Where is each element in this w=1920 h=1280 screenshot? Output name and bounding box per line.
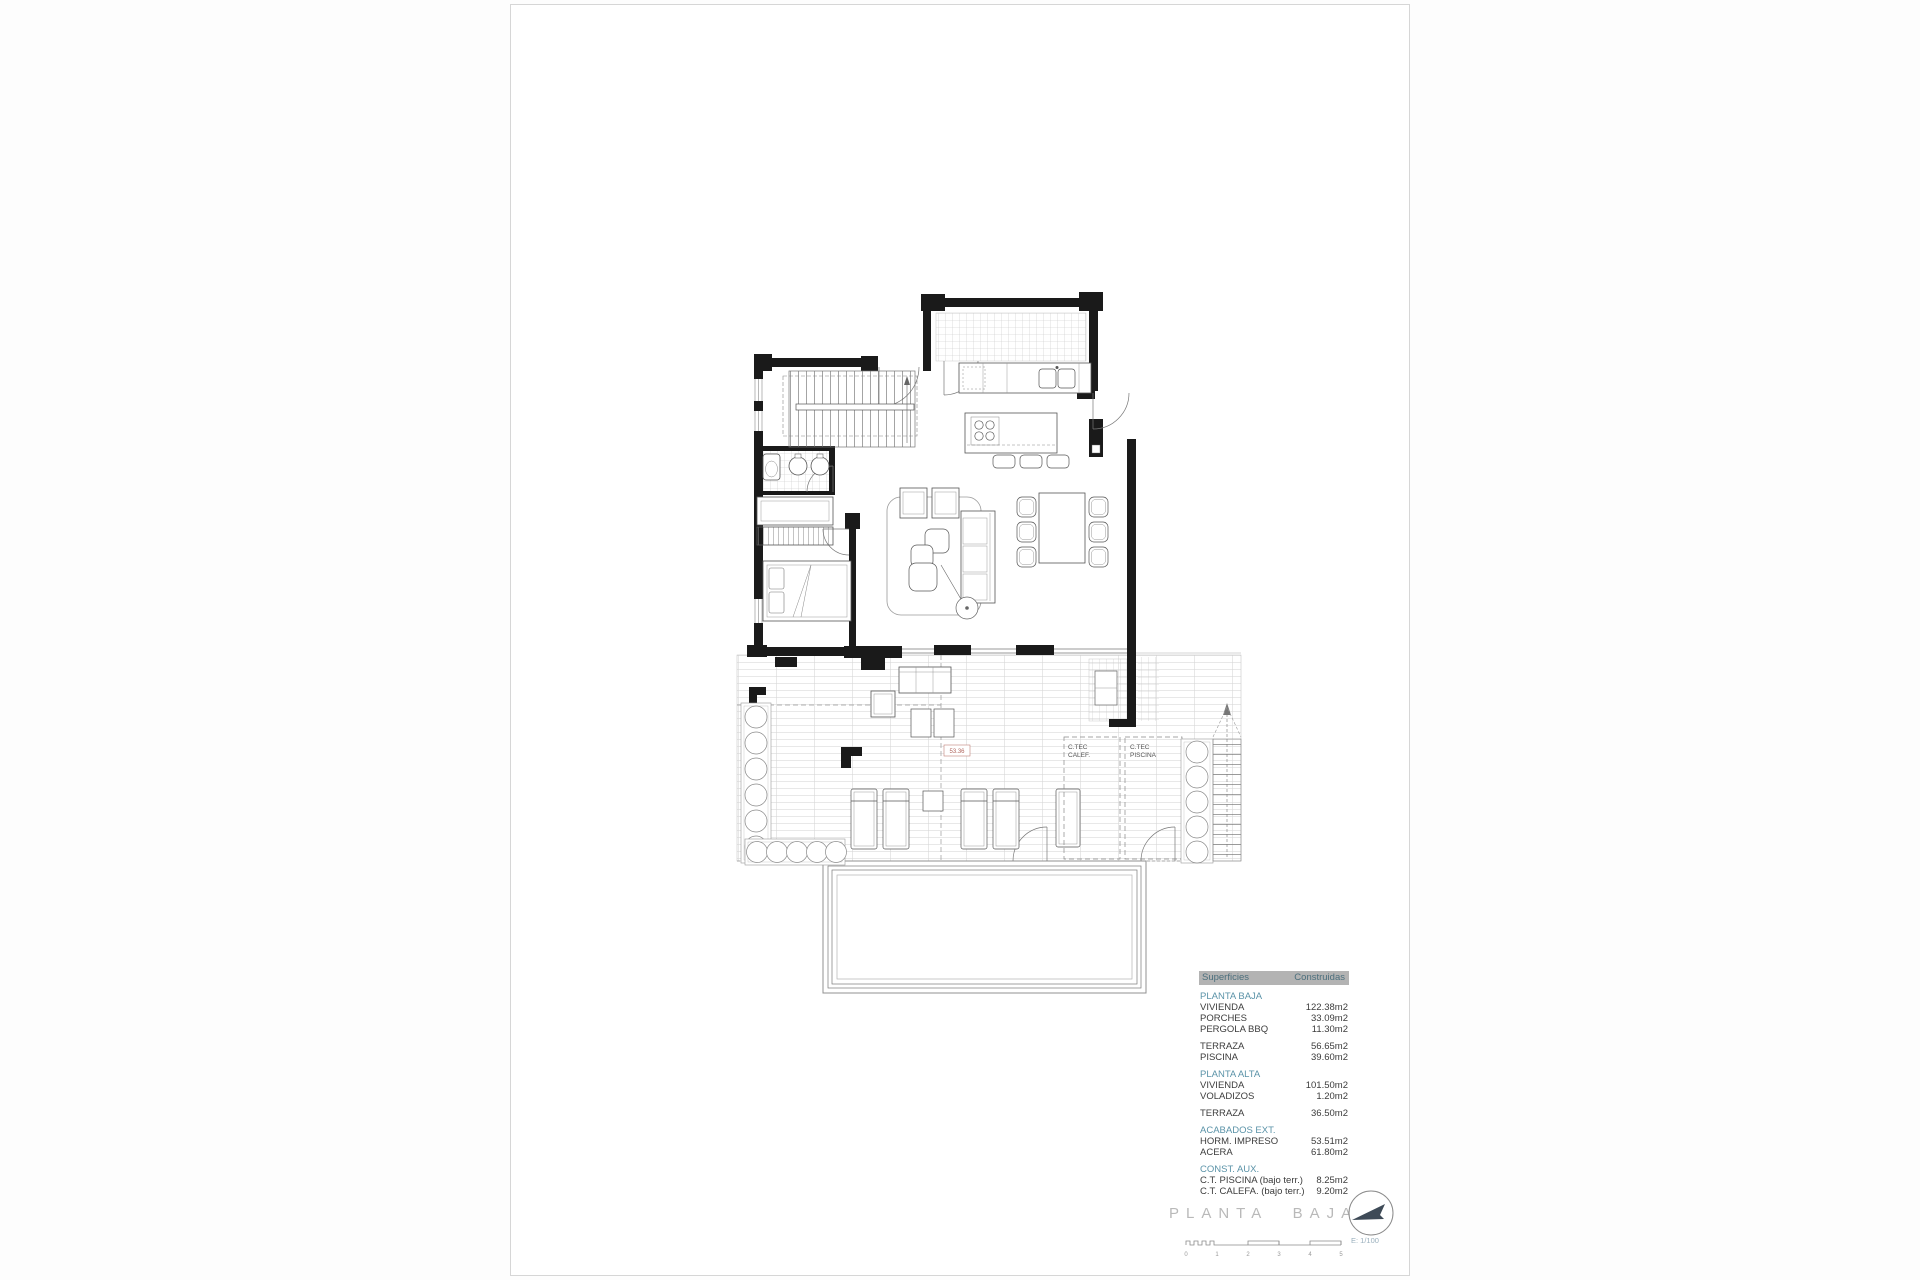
ct-piscina-label-2: PISCINA <box>1130 752 1157 759</box>
surfaces-table-header: Superficies Construidas <box>1199 971 1349 985</box>
surface-row: VIVIENDA101.50m2 <box>1199 1080 1349 1091</box>
bed <box>763 561 851 621</box>
surface-section-heading: PLANTA BAJA <box>1199 991 1349 1002</box>
surface-label: C.T. CALEFA. (bajo terr.) <box>1200 1186 1305 1197</box>
outdoor-dining-annex <box>1089 657 1159 721</box>
section-label: CONST. AUX. <box>1200 1164 1259 1175</box>
surface-row: PERGOLA BBQ11.30m2 <box>1199 1024 1349 1035</box>
level-mark: 53.36 <box>944 745 970 756</box>
surface-row: TERRAZA56.65m2 <box>1199 1041 1349 1052</box>
sheet-title: PLANTA BAJA <box>1169 1205 1358 1222</box>
wardrobe <box>757 497 833 545</box>
surface-value: 36.50m2 <box>1311 1108 1348 1119</box>
surface-value: 101.50m2 <box>1306 1080 1348 1091</box>
surface-row: HORM. IMPRESO53.51m2 <box>1199 1136 1349 1147</box>
plan-sheet-a4: C.TEC CALEF. C.TEC PISCINA 53.36 <box>510 4 1410 1276</box>
dining-set <box>1017 493 1108 567</box>
surface-value: 33.09m2 <box>1311 1013 1348 1024</box>
surface-label: VIVIENDA <box>1200 1080 1244 1091</box>
surface-value: 11.30m2 <box>1312 1024 1348 1035</box>
surface-row: C.T. PISCINA (bajo terr.)8.25m2 <box>1199 1175 1349 1186</box>
surface-label: VIVIENDA <box>1200 1002 1244 1013</box>
surface-label: TERRAZA <box>1200 1041 1244 1052</box>
section-label: PLANTA BAJA <box>1200 991 1262 1002</box>
surface-label: PISCINA <box>1200 1052 1238 1063</box>
surface-row: C.T. CALEFA. (bajo terr.)9.20m2 <box>1199 1186 1349 1197</box>
surface-label: TERRAZA <box>1200 1108 1244 1119</box>
surface-value: 56.65m2 <box>1311 1041 1348 1052</box>
column-construidas: Construidas <box>1294 973 1345 983</box>
level-mark-value: 53.36 <box>949 749 965 755</box>
staircase <box>783 371 917 447</box>
surface-value: 9.20m2 <box>1316 1186 1348 1197</box>
ct-calefa-label-1: C.TEC <box>1068 744 1088 751</box>
surface-row: PORCHES33.09m2 <box>1199 1013 1349 1024</box>
surface-section-heading: PLANTA ALTA <box>1199 1069 1349 1080</box>
surface-section-heading: ACABADOS EXT. <box>1199 1125 1349 1136</box>
surface-row: TERRAZA36.50m2 <box>1199 1108 1349 1119</box>
living-room-furniture <box>887 488 995 619</box>
surface-value: 122.38m2 <box>1306 1002 1348 1013</box>
surface-row: PISCINA39.60m2 <box>1199 1052 1349 1063</box>
surface-row: VOLADIZOS1.20m2 <box>1199 1091 1349 1102</box>
surface-value: 61.80m2 <box>1311 1147 1348 1158</box>
swimming-pool <box>823 861 1146 993</box>
surface-value: 53.51m2 <box>1311 1136 1348 1147</box>
surface-label: VOLADIZOS <box>1200 1091 1254 1102</box>
ct-piscina-label-1: C.TEC <box>1130 744 1150 751</box>
kitchen-counter <box>959 363 1091 393</box>
surface-value: 1.20m2 <box>1316 1091 1348 1102</box>
section-label: PLANTA ALTA <box>1200 1069 1260 1080</box>
section-label: ACABADOS EXT. <box>1200 1125 1276 1136</box>
surface-row: ACERA61.80m2 <box>1199 1147 1349 1158</box>
surface-label: PERGOLA BBQ <box>1200 1024 1268 1035</box>
terrace-paving <box>737 653 1241 861</box>
surface-row: VIVIENDA122.38m2 <box>1199 1002 1349 1013</box>
surface-label: PORCHES <box>1200 1013 1247 1024</box>
pergola-bbq-area <box>936 313 1086 361</box>
ct-calefa-label-2: CALEF. <box>1068 752 1090 759</box>
surface-value: 8.25m2 <box>1316 1175 1348 1186</box>
surface-value: 39.60m2 <box>1311 1052 1348 1063</box>
surfaces-table: Superficies Construidas PLANTA BAJA VIVI… <box>1199 971 1349 1197</box>
drawing-viewport: C.TEC CALEF. C.TEC PISCINA 53.36 <box>0 0 1920 1280</box>
kitchen-island <box>965 413 1069 468</box>
surface-section-heading: CONST. AUX. <box>1199 1164 1349 1175</box>
surface-label: HORM. IMPRESO <box>1200 1136 1278 1147</box>
surface-label: ACERA <box>1200 1147 1233 1158</box>
column-superficies: Superficies <box>1202 973 1249 983</box>
surface-label: C.T. PISCINA (bajo terr.) <box>1200 1175 1303 1186</box>
